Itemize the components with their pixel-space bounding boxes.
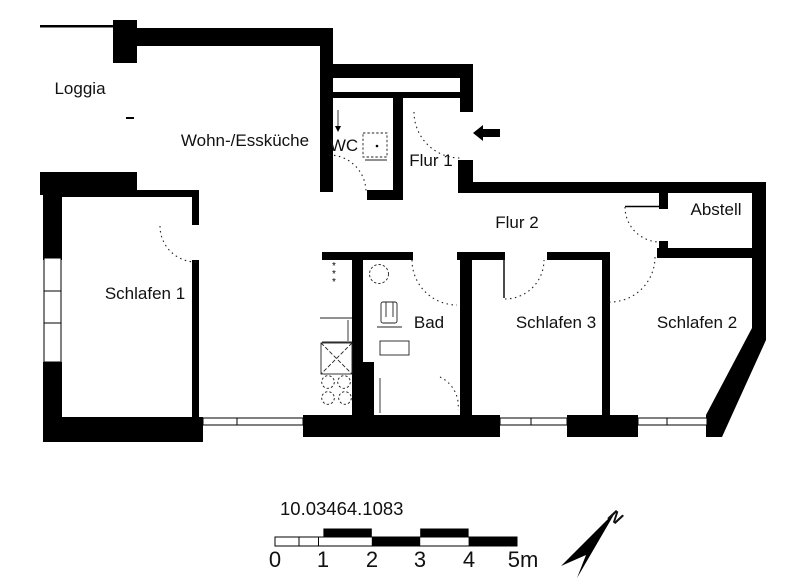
bad-basin-icon <box>370 265 389 284</box>
burner-icon-2 <box>338 376 351 389</box>
wc-basin-icon <box>363 133 387 157</box>
right-exterior-wall <box>752 182 766 340</box>
room-label-schlafen3: Schlafen 3 <box>516 313 596 332</box>
kitchen-fixtures: * * * <box>320 261 352 404</box>
schlafen1-right-wall-upper <box>192 190 199 225</box>
wc-basin-drain-icon <box>376 145 379 148</box>
schlafen1-window <box>44 258 61 362</box>
kitchen-bad-bottom-wall <box>303 415 500 437</box>
scale-seg-2-3 <box>372 537 420 546</box>
shaft-vent-mark-3: * <box>332 277 336 288</box>
wc-bottom-wall <box>367 190 403 200</box>
scale-end-label: 5m <box>508 547 539 572</box>
schlafen3-bottom-wall <box>567 415 638 437</box>
scale-tick-2: 2 <box>366 547 378 572</box>
north-arrow: N <box>561 506 626 578</box>
schlafen2-window <box>638 418 707 425</box>
bad-bidet-icon <box>380 341 409 355</box>
scale-tick-4: 4 <box>463 547 475 572</box>
schlafen1-door-arc <box>160 226 196 262</box>
scale-tick-0: 0 <box>269 547 281 572</box>
bad-top-wall-left <box>322 252 413 260</box>
room-label-schlafen1: Schlafen 1 <box>105 284 185 303</box>
wc-left-wall <box>320 28 333 192</box>
entrance-arrow-icon <box>473 125 500 141</box>
bathtub-arc <box>440 377 458 410</box>
abstell-bottom-wall <box>657 248 766 258</box>
bad-door-arc <box>412 260 457 305</box>
floor-plan: * * * Loggia Wohn-/Essküche WC Flur 1 Fl… <box>0 0 792 587</box>
schlafen2-door-arc <box>610 257 655 302</box>
kitchen-bad-divider <box>352 258 363 437</box>
schlafen1-bottom-wall <box>43 417 203 442</box>
scale-bar: 10.03464.1083 0 1 2 3 4 5m <box>269 498 538 572</box>
kitchen-window <box>203 418 303 425</box>
schlafen2-diagonal-wall <box>706 328 766 437</box>
room-label-flur1: Flur 1 <box>409 151 452 170</box>
scale-tick-3: 3 <box>414 547 426 572</box>
abstell-door-arc <box>625 207 660 242</box>
scale-tick-1: 1 <box>317 547 329 572</box>
plan-number: 10.03464.1083 <box>280 498 403 519</box>
wc-toilet-arrow-icon <box>335 126 341 132</box>
bad-fixtures <box>370 265 410 414</box>
room-label-flur2: Flur 2 <box>495 213 538 232</box>
room-label-abstell: Abstell <box>690 200 741 219</box>
north-letter: N <box>605 506 627 529</box>
bad-toilet-icon <box>381 302 397 323</box>
room-label-wc: WC <box>330 136 358 155</box>
kitchen-top-wall <box>113 28 332 46</box>
schlafen1-top-wall <box>62 190 198 197</box>
entry-top-wall <box>320 64 473 78</box>
wc-thin-top-wall <box>333 92 460 98</box>
abstell-left-stub-upper <box>659 193 668 209</box>
scale-seg-3-4 <box>420 529 468 538</box>
left-exterior-wall-lower <box>43 362 62 442</box>
burner-icon-1 <box>322 376 335 389</box>
flur1-right-wall-upper <box>460 64 473 112</box>
room-label-loggia: Loggia <box>54 79 106 98</box>
walls <box>40 20 766 442</box>
loggia-top-edge <box>40 25 115 28</box>
burner-icon-4 <box>339 392 352 405</box>
schlafen3-window <box>500 418 567 425</box>
room-label-kitchen: Wohn-/Essküche <box>181 131 309 150</box>
schlafen3-schlafen2-divider <box>602 258 610 415</box>
burner-icon-3 <box>322 392 335 405</box>
scale-seg-4-5 <box>469 537 517 546</box>
flur2-top-wall <box>458 182 766 193</box>
wc-flur1-divider <box>393 98 403 197</box>
scale-seg-1-2 <box>323 529 371 538</box>
room-label-bad: Bad <box>414 313 444 332</box>
schlafen1-right-wall-lower <box>192 260 199 417</box>
wc-door-arc <box>329 155 366 192</box>
room-label-schlafen2: Schlafen 2 <box>657 313 737 332</box>
schlafen3-top-wall <box>547 252 610 260</box>
bad-schlafen3-divider <box>460 252 472 415</box>
schlafen3-door-arc <box>505 260 544 299</box>
floor-plan-drawing: * * * Loggia Wohn-/Essküche WC Flur 1 Fl… <box>0 0 792 587</box>
